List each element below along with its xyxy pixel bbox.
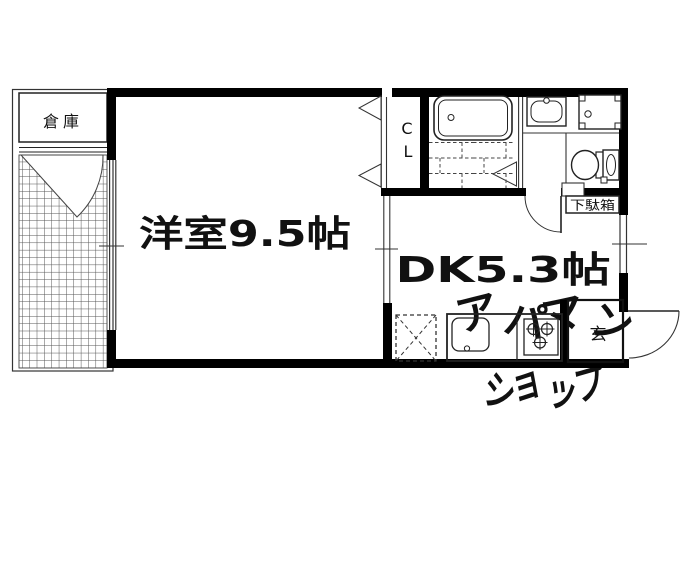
wall-dk-north-left xyxy=(381,188,526,196)
closet-label-l: L xyxy=(404,142,413,161)
balcony xyxy=(13,90,114,372)
closet-label-c: C xyxy=(401,119,412,138)
entrance-label: 玄 xyxy=(590,325,607,345)
toilet-plumbing xyxy=(601,177,607,183)
wall-room-dk-lower xyxy=(383,303,392,361)
wall-top-left-segment xyxy=(107,88,382,97)
bathtub xyxy=(434,96,512,140)
wall-closet-bath xyxy=(420,95,429,194)
storage-label: 倉庫 xyxy=(43,112,83,131)
bathroom-tile-floor xyxy=(429,142,515,188)
toilet-bowl xyxy=(572,151,599,180)
floorplan-canvas: アパマン ショップ xyxy=(0,0,690,575)
western-room-label: 洋室9.5帖 xyxy=(139,214,351,255)
dk-label: DK5.3帖 xyxy=(396,250,611,291)
wall-left-upper xyxy=(107,88,116,160)
floorplan-svg: アパマン ショップ xyxy=(0,0,690,575)
shoe-cabinet-label: 下駄箱 xyxy=(570,198,615,213)
toilet-door xyxy=(562,183,584,196)
washbasin-faucet xyxy=(544,98,550,104)
